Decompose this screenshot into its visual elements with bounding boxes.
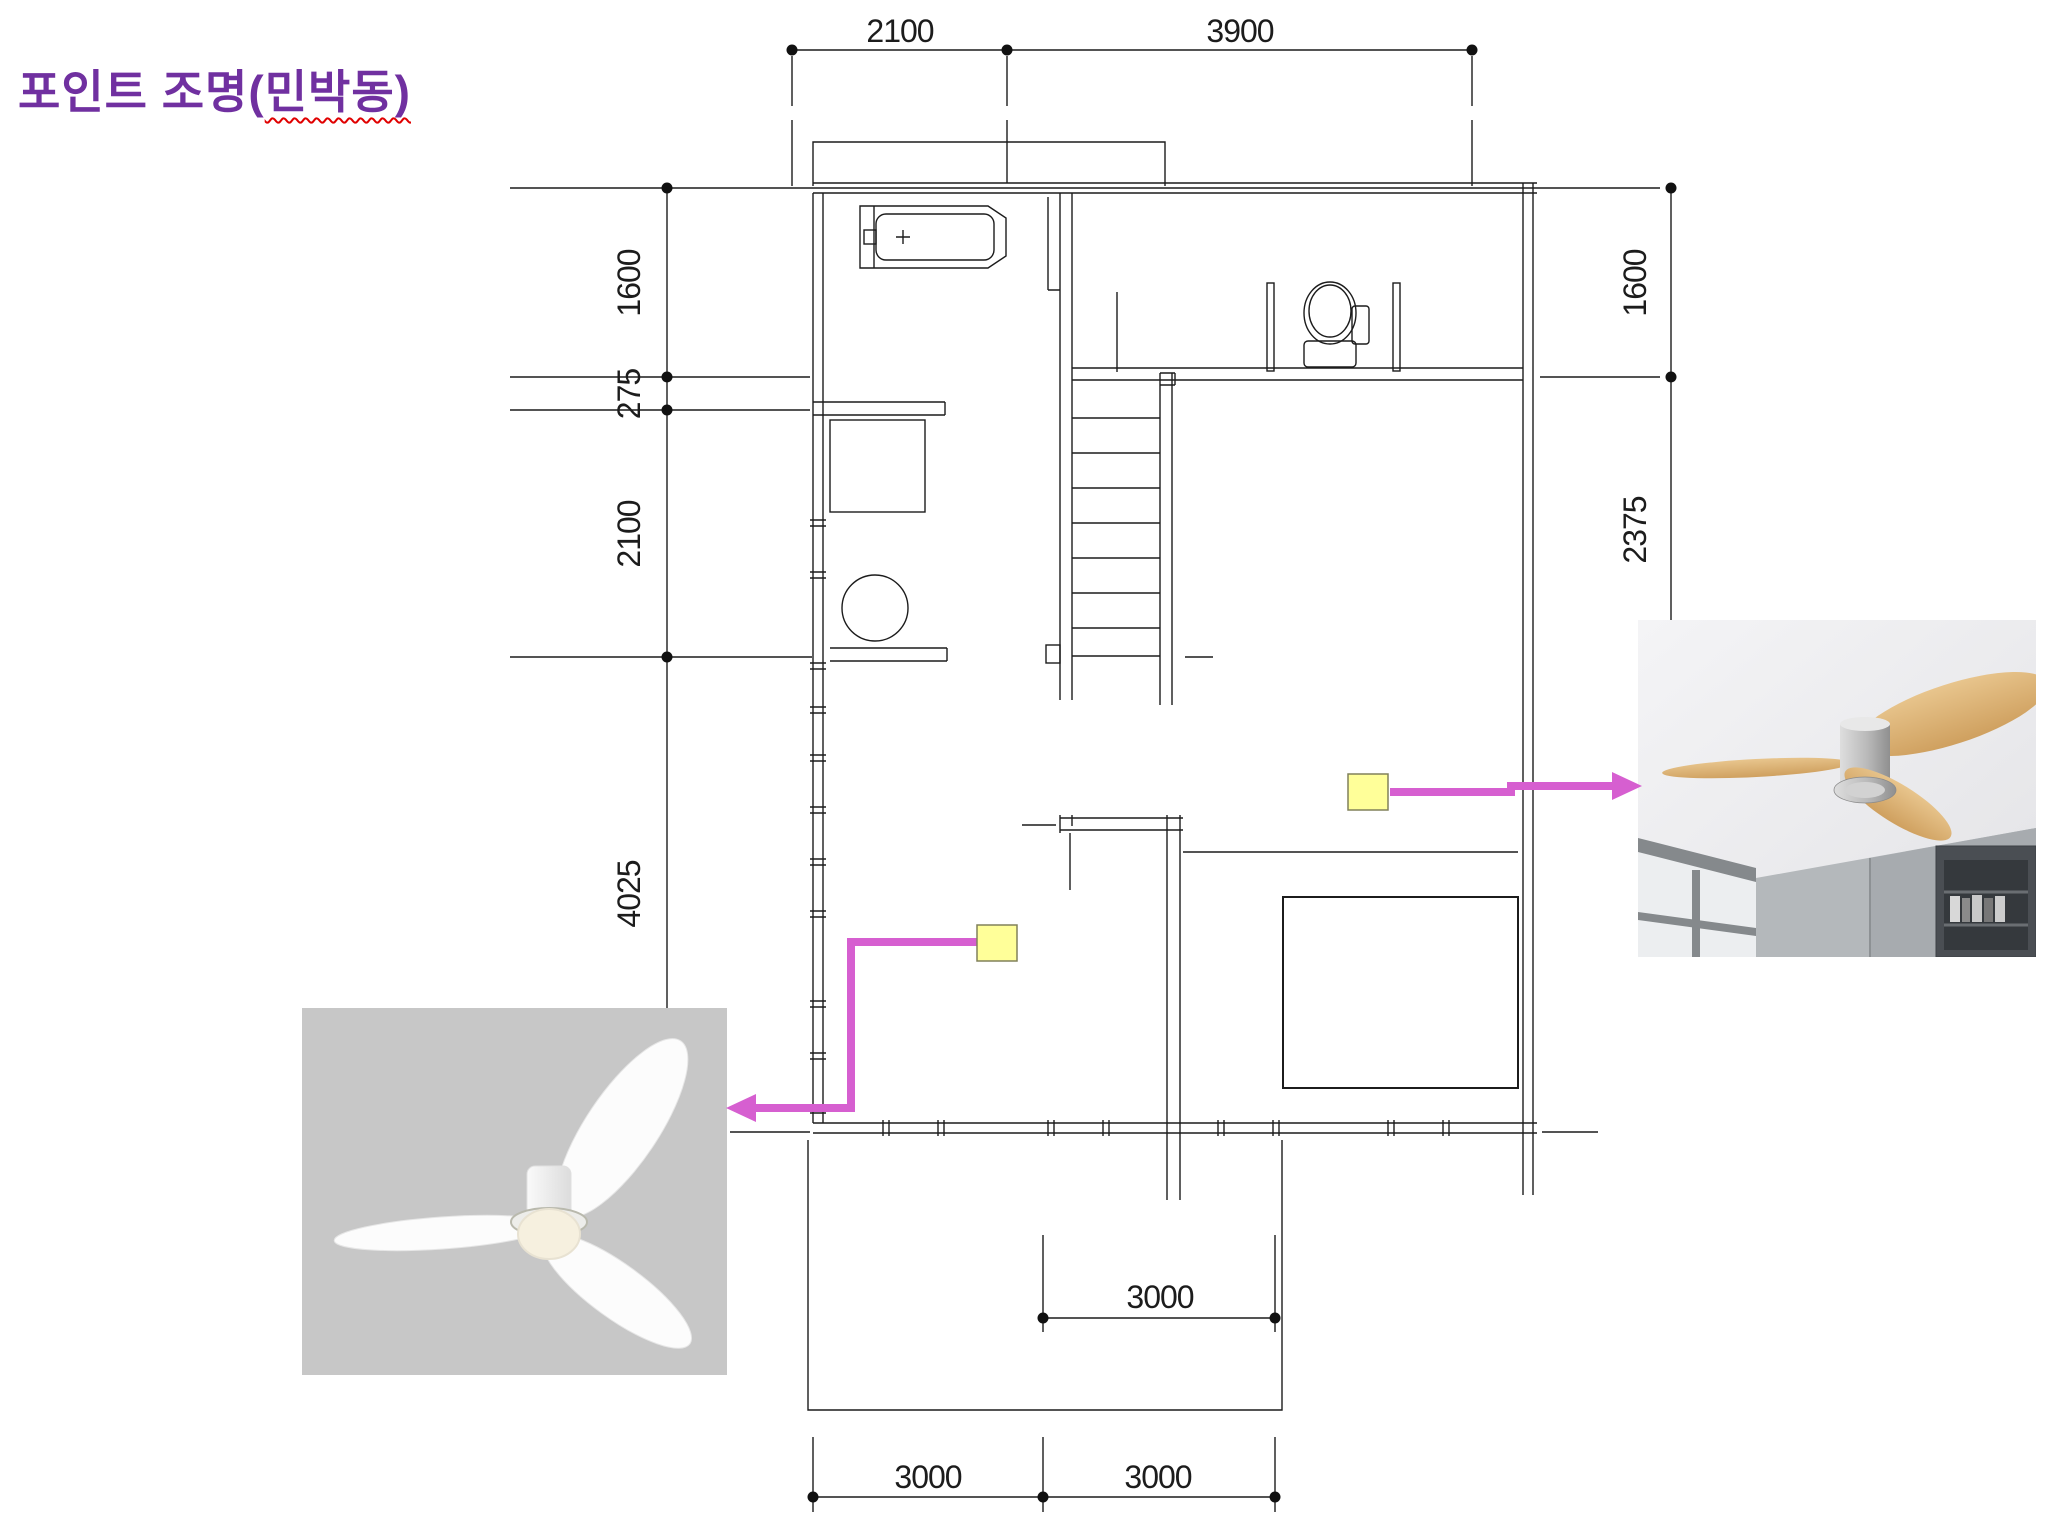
photo-bookshelf — [1936, 846, 2036, 957]
dim-top-2: 3900 — [1206, 13, 1273, 49]
dim-left-4: 4025 — [611, 860, 647, 927]
sink-fixture — [860, 206, 1006, 268]
dim-right-1: 1600 — [1617, 249, 1653, 316]
dim-bottom-2: 3000 — [1124, 1459, 1191, 1495]
toilet-fixture — [1267, 282, 1400, 371]
wood-fan-cap-center — [1845, 782, 1885, 798]
dim-left-1: 1600 — [611, 249, 647, 316]
closet — [830, 420, 925, 512]
dim-inner-bottom: 3000 — [1126, 1279, 1193, 1315]
dim-left-3: 2100 — [611, 500, 647, 567]
dim-bottom-1: 3000 — [894, 1459, 961, 1495]
slide: 포인트 조명(민박동) — [0, 0, 2048, 1530]
stairs — [1072, 292, 1160, 656]
dim-right-2: 2375 — [1617, 496, 1653, 563]
wood-fan-hub-top — [1840, 717, 1890, 731]
dim-top-1: 2100 — [866, 13, 933, 49]
dimension-labels: 2100 3900 1600 275 2100 4025 1600 2375 3… — [611, 13, 1653, 1495]
door-jamb — [1046, 645, 1060, 663]
dim-left-2: 275 — [611, 369, 647, 420]
wood-ceiling-fan-photo — [1638, 620, 2036, 957]
white-ceiling-fan-photo — [302, 1008, 727, 1375]
window-mullions — [810, 520, 1449, 1136]
white-fan-light — [518, 1209, 580, 1259]
walls — [813, 142, 1537, 1200]
washing-machine — [842, 575, 908, 641]
deck-outline — [808, 1140, 1282, 1410]
bed — [1283, 897, 1518, 1088]
